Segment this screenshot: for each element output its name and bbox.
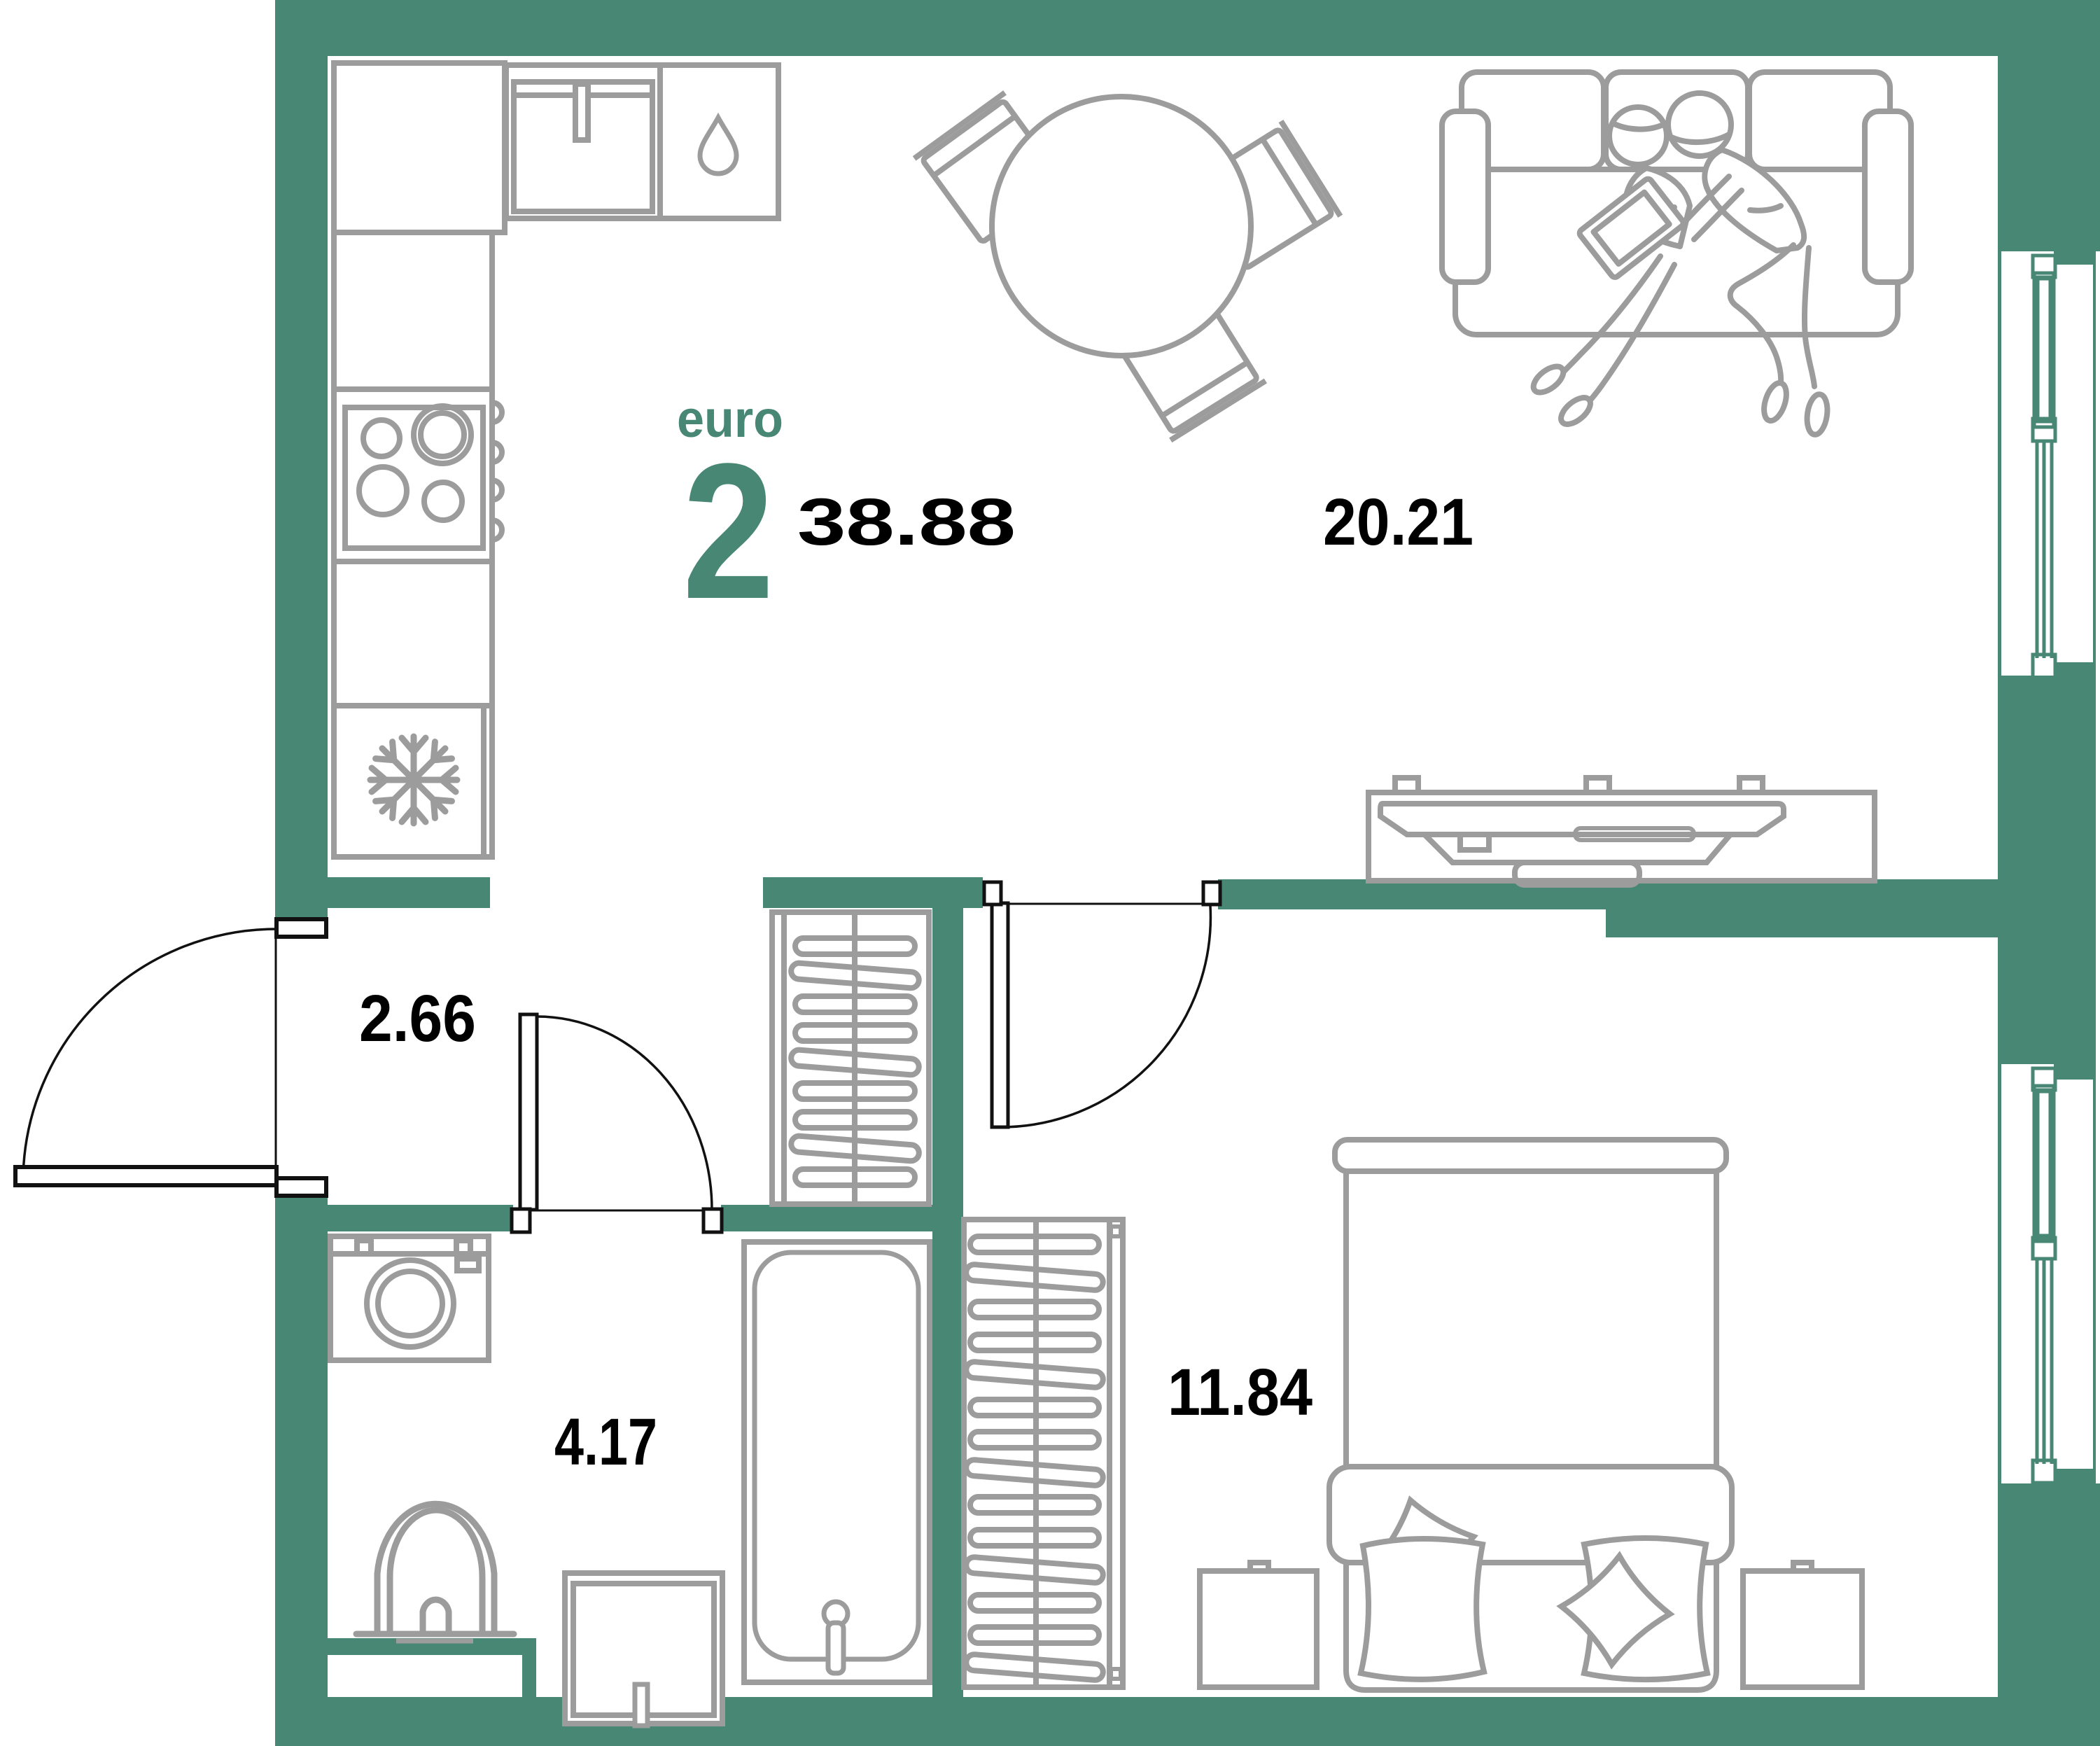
svg-text:20.21: 20.21 xyxy=(1323,485,1473,559)
svg-text:2.66: 2.66 xyxy=(359,982,476,1056)
svg-text:4.17: 4.17 xyxy=(554,1405,657,1479)
svg-text:2: 2 xyxy=(682,424,774,639)
svg-text:11.84: 11.84 xyxy=(1168,1355,1312,1430)
svg-text:38.88: 38.88 xyxy=(797,485,1016,559)
